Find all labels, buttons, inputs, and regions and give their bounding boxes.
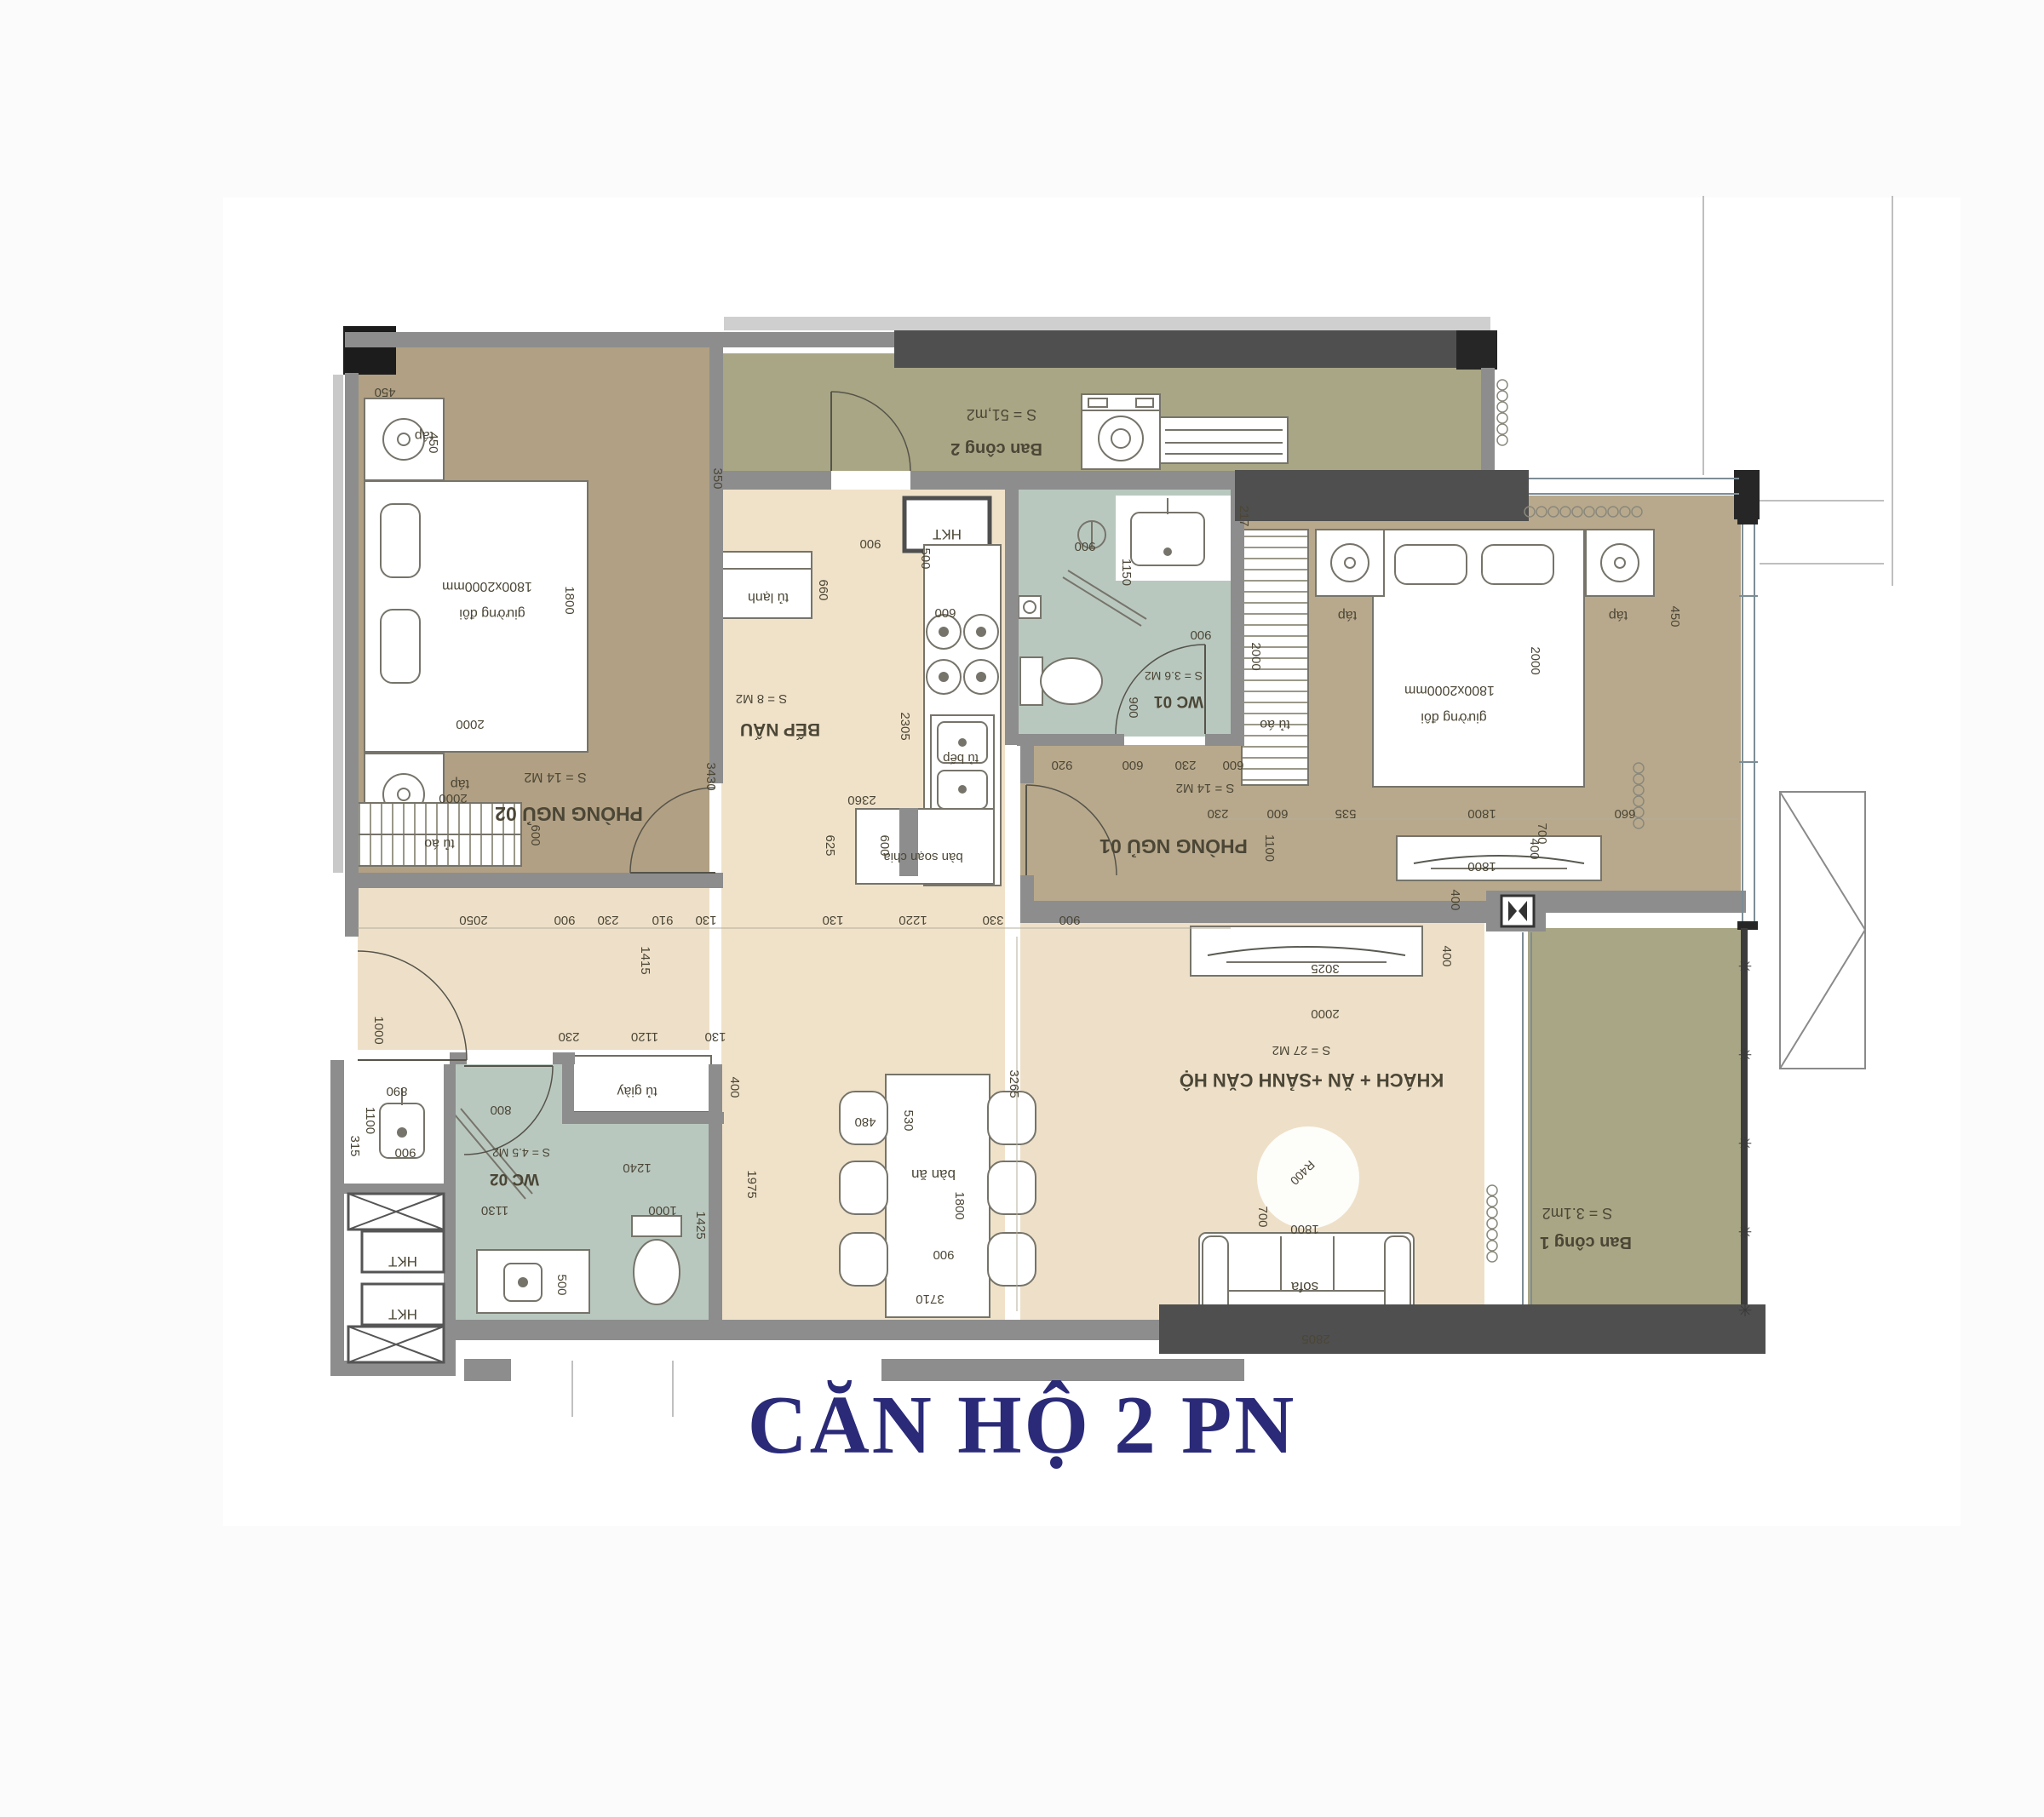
dimension-label: 910 (652, 913, 673, 927)
wall (344, 1184, 456, 1194)
dimension-label: 900 (933, 1247, 954, 1262)
chair (988, 1233, 1036, 1286)
wc01-cistern (1020, 657, 1042, 705)
dimension-label: 1800 (952, 1191, 967, 1219)
dimension-label: 1100 (1262, 834, 1277, 862)
wall (345, 332, 899, 347)
wall (562, 1112, 724, 1124)
floor-plan-drawing: S = 14 M2PHÒNG NGỦ 02táptáp1800x2000mmgi… (0, 0, 2044, 1817)
dimension-label: 900 (1059, 913, 1080, 927)
dimension-label: 1425 (693, 1211, 708, 1239)
room-name: Ban công 2 (950, 439, 1042, 458)
nightstand (1586, 530, 1654, 596)
dimension-label: 400 (1527, 838, 1542, 859)
furniture-label: tủ áo (1260, 717, 1290, 731)
dimension-label: 600 (528, 824, 543, 845)
dimension-label: 400 (727, 1076, 742, 1098)
dimension-label: 600 (934, 605, 956, 620)
room-name: WC 01 (1154, 692, 1204, 710)
wall (1017, 734, 1124, 746)
wall (562, 1052, 574, 1117)
dimension-label: 600 (877, 834, 892, 856)
dimension-label: 700 (1255, 1206, 1270, 1227)
railing-marker-icon: ✳ (1738, 1224, 1753, 1242)
dimension-label: 1220 (899, 913, 927, 927)
dimension-label: 3710 (916, 1292, 944, 1306)
dimension-label: 3025 (1311, 961, 1339, 976)
wall (454, 1320, 1159, 1340)
dimension-label: 2360 (847, 793, 876, 807)
wall-dark (1235, 470, 1529, 521)
dimension-label: 1415 (638, 946, 652, 974)
dimension-label: 535 (1335, 806, 1356, 821)
wc02-toilet (634, 1240, 680, 1304)
wall (1005, 471, 1019, 745)
dimension-label: 600 (1222, 758, 1243, 772)
dimension-label: 217 (1237, 505, 1251, 526)
dimension-label: 400 (1448, 889, 1462, 910)
dimension-label: 920 (1051, 758, 1072, 772)
shaft-label: HKT (388, 1253, 417, 1270)
railing-marker-icon: ✳ (1738, 958, 1753, 977)
plan-shapes (223, 196, 1961, 1526)
pillow (381, 504, 420, 577)
window-strip (333, 375, 343, 873)
wall (450, 1052, 467, 1064)
dimension-label: 1240 (623, 1161, 651, 1175)
shaft-label: HKT (933, 526, 962, 542)
tv-console-living (1191, 926, 1422, 976)
dimension-label: 600 (1122, 758, 1143, 772)
room-area: S = 51,m2 (967, 406, 1037, 423)
shoe-cabinet (573, 1056, 711, 1112)
pillow (1482, 545, 1553, 584)
dimension-label: 900 (859, 536, 881, 551)
dimension-label: 890 (386, 1084, 407, 1098)
furniture-label: giường đôi (459, 606, 525, 621)
chair (988, 1092, 1036, 1144)
dimension-label: 1800 (562, 586, 577, 614)
wall (1205, 734, 1244, 746)
dimension-label: 800 (490, 1103, 511, 1117)
chair (988, 1161, 1036, 1214)
dimension-label: 130 (695, 913, 716, 927)
furniture-label: bàn soạn chia (883, 850, 963, 864)
floor-corridor (358, 888, 709, 1050)
dimension-label: 450 (426, 432, 440, 453)
dimension-label: 500 (554, 1274, 569, 1295)
dimension-label: 900 (1190, 628, 1211, 642)
wall (709, 1064, 722, 1320)
burner-dot (976, 672, 986, 682)
room-name: BẾP NẤU (740, 719, 820, 739)
tv-console-bedroom-01 (1397, 836, 1601, 880)
window-post (1737, 516, 1758, 524)
dimension-label: 660 (1614, 806, 1635, 821)
wall (1020, 746, 1034, 783)
furniture-label: sofa (1290, 1279, 1318, 1295)
furniture-label: giường đôi (1421, 710, 1486, 725)
dimension-label: 600 (1266, 806, 1288, 821)
railing-marker-icon: ✳ (1738, 1135, 1753, 1154)
chair (840, 1161, 887, 1214)
wall (330, 1060, 344, 1376)
pillow (1395, 545, 1467, 584)
wall-corner (1456, 330, 1497, 370)
dimension-label: 2000 (439, 791, 467, 805)
nightstand (1316, 530, 1384, 596)
dimension-label: 130 (822, 913, 843, 927)
wall (345, 373, 359, 937)
burner-dot (939, 672, 949, 682)
dimension-label: 230 (558, 1029, 579, 1044)
furniture-label: táp (1338, 608, 1357, 622)
dimension-label: 480 (854, 1115, 876, 1129)
burner-dot (939, 627, 949, 637)
washer-knob (1088, 398, 1107, 407)
room-name: Ban công 1 (1540, 1233, 1632, 1252)
wall (345, 873, 723, 888)
dimension-label: 900 (1074, 539, 1095, 553)
dimension-label: 130 (704, 1029, 726, 1044)
furniture-label: tủ lạnh (748, 590, 789, 605)
dimension-label: 1150 (1119, 559, 1134, 586)
dimension-label: 500 (918, 547, 933, 569)
prep-counter (856, 809, 994, 884)
drain (958, 738, 967, 747)
dimension-label: 230 (1174, 758, 1196, 772)
dimension-label: 900 (554, 913, 575, 927)
dimension-label: 230 (597, 913, 618, 927)
shower-drain (1019, 596, 1041, 618)
room-area: S = 27 M2 (1272, 1043, 1331, 1058)
dimension-label: 400 (1439, 945, 1454, 966)
room-area: S = 3.6 M2 (1145, 669, 1203, 683)
room-name: PHÒNG NGỦ 01 (1100, 835, 1248, 859)
sofa-arm (1203, 1236, 1228, 1315)
dimension-label: 1800 (1290, 1222, 1318, 1236)
dimension-label: 625 (823, 834, 837, 856)
dimension-label: 2050 (459, 913, 487, 927)
dimension-label: 1120 (631, 1029, 658, 1044)
wall (1020, 901, 1486, 923)
dimension-label: 530 (901, 1109, 916, 1131)
wall-dark (1484, 1304, 1766, 1354)
dimension-label: 2000 (1249, 642, 1263, 670)
washer-knob (1136, 398, 1153, 407)
dimension-label: 330 (982, 913, 1003, 927)
dimension-label: 2000 (1311, 1006, 1339, 1021)
furniture-label: táp (451, 777, 469, 791)
wc01-sink (1131, 513, 1204, 565)
dimension-label: 660 (816, 579, 830, 600)
burner-dot (976, 627, 986, 637)
wall (1231, 490, 1244, 745)
plan-title: CĂN HỘ 2 PN (0, 1378, 2044, 1472)
dimension-label: 900 (394, 1145, 416, 1160)
furniture-label: tủ bếp (943, 751, 979, 765)
furniture-label: tủ áo (424, 836, 455, 851)
wall (721, 471, 831, 490)
wc02-cistern (632, 1216, 681, 1236)
wc01-toilet (1041, 658, 1102, 704)
furniture-label: 1800x2000mm (1404, 683, 1495, 697)
floor-plan-page: S = 14 M2PHÒNG NGỦ 02táptáp1800x2000mmgi… (0, 0, 2044, 1817)
wc01-sink-drain (1163, 547, 1172, 556)
room-name: KHÁCH + ĂN +SẢNH CĂN HỘ (1180, 1069, 1444, 1091)
wc02-basin-drain (518, 1277, 528, 1287)
dimension-label: 1000 (371, 1016, 386, 1044)
furniture-label: bàn ăn (911, 1166, 956, 1183)
wall (1020, 875, 1034, 901)
wall (444, 1194, 456, 1364)
dimension-label: 1800 (1467, 859, 1496, 874)
vanity-sink-drain (397, 1127, 407, 1138)
floor-balcony-1 (1528, 928, 1741, 1320)
chair (840, 1233, 887, 1286)
drain (958, 785, 967, 794)
dimension-label: 1800 (1467, 806, 1496, 821)
room-area: S = 14 M2 (524, 770, 586, 784)
dimension-label: 350 (710, 467, 725, 489)
dimension-label: 3430 (703, 762, 718, 790)
wall (709, 345, 723, 783)
hk-box (1501, 896, 1534, 926)
fridge (720, 552, 812, 618)
room-area: S = 8 M2 (736, 691, 787, 706)
dimension-label: 2000 (456, 717, 484, 731)
room-name: PHÒNG NGỦ 02 (495, 803, 643, 827)
shaft-label: HKT (388, 1306, 417, 1322)
furniture-label: 1800x2000mm (442, 579, 532, 593)
sofa-arm (1385, 1236, 1410, 1315)
dimension-label: 2000 (1528, 646, 1542, 674)
railing-marker-icon: ✳ (1738, 1046, 1753, 1065)
pillow (381, 610, 420, 683)
dimension-label: 2805 (1301, 1332, 1329, 1346)
dimension-label: 2305 (898, 712, 912, 740)
balcony-rail (1741, 928, 1748, 1321)
furniture-label: táp (1609, 608, 1628, 622)
room-area: S = 14 M2 (1176, 781, 1235, 795)
dimension-label: 3265 (1007, 1069, 1021, 1098)
dimension-label: 1100 (363, 1107, 377, 1134)
dimension-label: 315 (347, 1135, 362, 1156)
dimension-label: 900 (1126, 696, 1140, 718)
room-name: WC 02 (490, 1170, 539, 1188)
wall (1481, 368, 1495, 471)
dimension-label: 450 (1668, 605, 1682, 627)
furniture-label: tủ giày (617, 1084, 657, 1098)
drying-rack (1160, 417, 1288, 463)
dimension-label: 1130 (481, 1203, 508, 1218)
dimension-label: 1975 (744, 1170, 759, 1198)
railing-marker-icon: ✳ (1738, 1302, 1753, 1321)
wall (899, 808, 918, 876)
wall-light (724, 317, 1490, 330)
dimension-label: 230 (1207, 806, 1228, 821)
dimension-label: 450 (374, 385, 395, 399)
wall-dark (894, 330, 1497, 368)
dimension-label: 1000 (648, 1203, 676, 1218)
room-area: S = 4.5 M2 (492, 1146, 550, 1160)
room-area: S = 3.1m2 (1542, 1205, 1613, 1222)
